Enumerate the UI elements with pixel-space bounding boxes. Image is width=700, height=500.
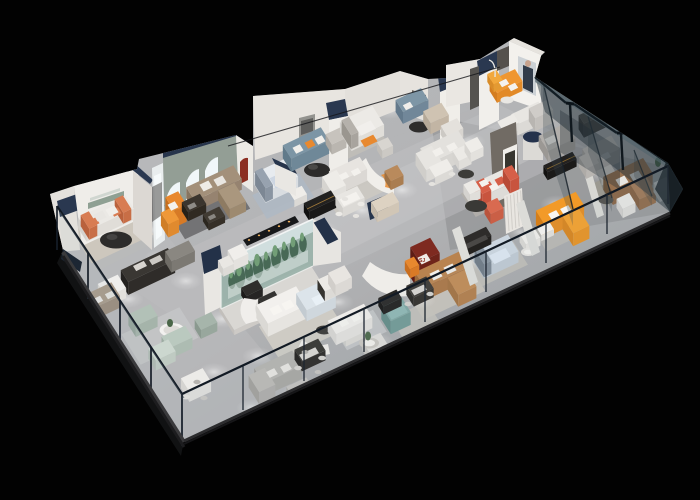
- svg-text:SJ: SJ: [419, 258, 425, 264]
